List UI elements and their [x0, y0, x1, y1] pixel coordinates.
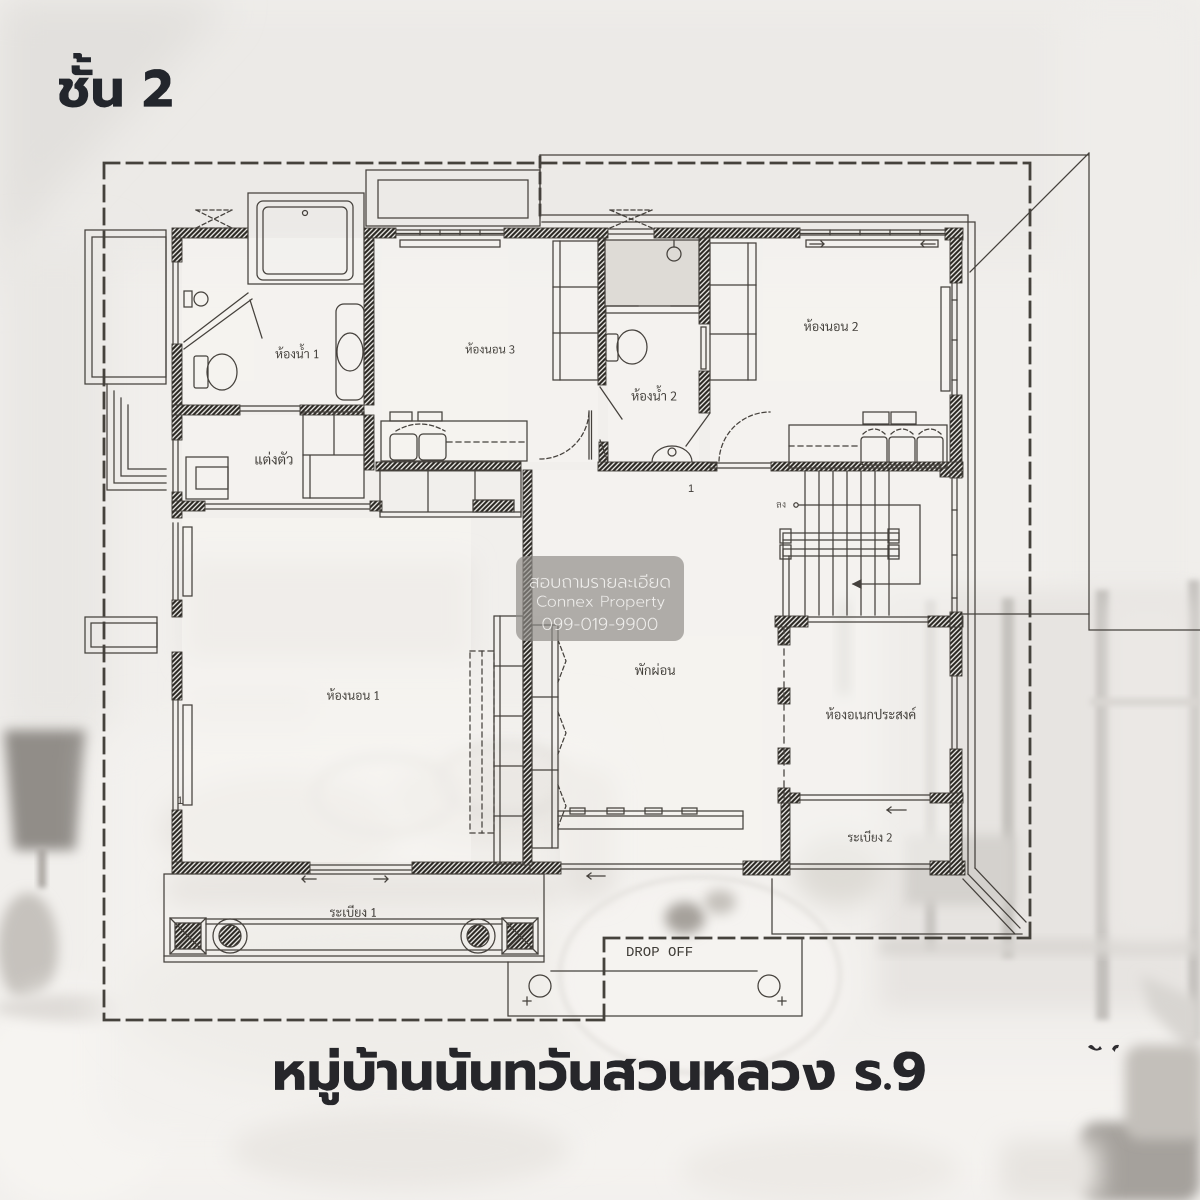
svg-text:1: 1 [688, 483, 694, 495]
svg-text:DROP OFF: DROP OFF [626, 945, 693, 961]
svg-text:1: 1 [177, 795, 183, 807]
